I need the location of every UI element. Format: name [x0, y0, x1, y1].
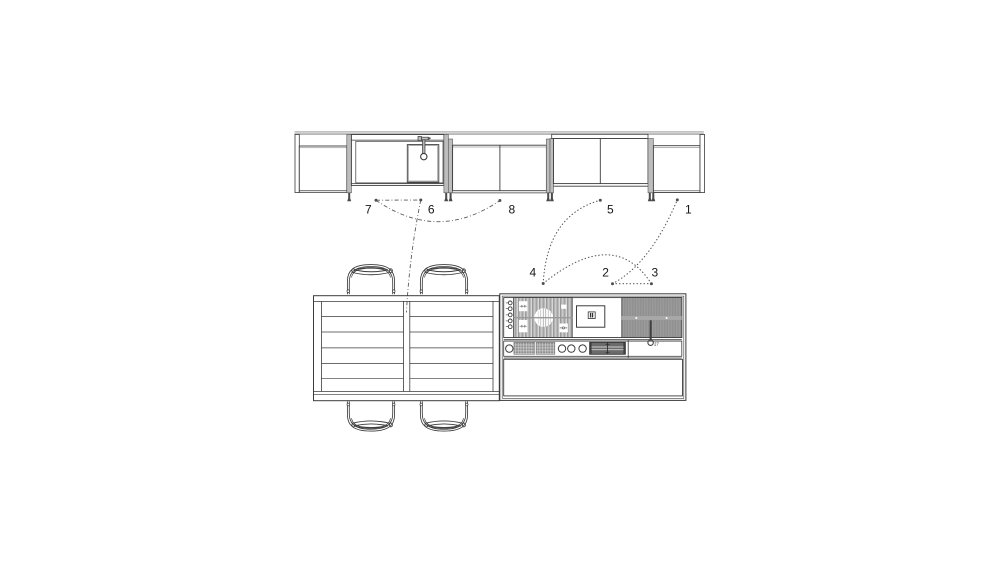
svg-text:5: 5: [607, 202, 614, 216]
svg-text:3: 3: [651, 266, 658, 280]
svg-text:6: 6: [428, 202, 435, 216]
svg-text:7: 7: [365, 202, 372, 216]
svg-text:27: 27: [654, 342, 659, 347]
svg-text:4: 4: [529, 266, 536, 280]
svg-text:8: 8: [509, 202, 516, 216]
svg-text:2: 2: [602, 266, 609, 280]
svg-text:1: 1: [685, 202, 692, 216]
